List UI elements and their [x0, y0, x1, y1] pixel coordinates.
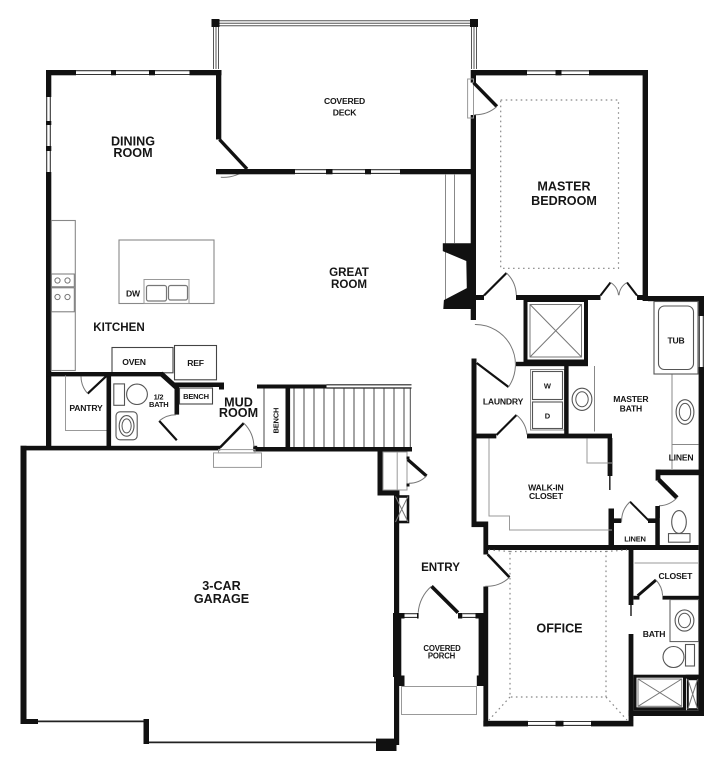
svg-text:BATH: BATH — [643, 629, 665, 639]
svg-text:GARAGE: GARAGE — [194, 592, 249, 606]
svg-text:BATH: BATH — [149, 400, 168, 409]
svg-text:ROOM: ROOM — [331, 278, 367, 291]
svg-text:3-CAR: 3-CAR — [202, 579, 240, 593]
svg-text:TUB: TUB — [667, 336, 684, 346]
svg-text:BEDROOM: BEDROOM — [531, 194, 597, 208]
svg-text:D: D — [545, 412, 551, 421]
svg-text:LINEN: LINEN — [669, 453, 694, 463]
svg-text:PORCH: PORCH — [428, 652, 456, 661]
svg-text:CLOSET: CLOSET — [658, 571, 693, 581]
svg-text:PANTRY: PANTRY — [69, 403, 103, 413]
svg-text:REF: REF — [187, 358, 204, 368]
svg-text:CLOSET: CLOSET — [529, 491, 564, 501]
svg-text:MASTER: MASTER — [537, 180, 590, 194]
svg-text:BENCH: BENCH — [272, 408, 281, 434]
svg-text:W: W — [544, 382, 552, 391]
svg-text:DECK: DECK — [333, 108, 358, 118]
svg-text:BENCH: BENCH — [183, 392, 209, 401]
svg-text:DW: DW — [126, 289, 141, 299]
svg-text:ROOM: ROOM — [219, 406, 258, 420]
svg-text:KITCHEN: KITCHEN — [93, 321, 145, 334]
svg-text:COVERED: COVERED — [324, 96, 365, 106]
svg-text:ENTRY: ENTRY — [421, 561, 460, 574]
svg-text:LAUNDRY: LAUNDRY — [483, 397, 524, 407]
svg-text:ROOM: ROOM — [113, 146, 152, 160]
svg-text:OVEN: OVEN — [122, 357, 146, 367]
svg-text:OFFICE: OFFICE — [536, 622, 582, 636]
svg-text:MASTER: MASTER — [613, 394, 649, 404]
svg-text:LINEN: LINEN — [624, 535, 646, 544]
svg-text:BATH: BATH — [620, 404, 642, 414]
